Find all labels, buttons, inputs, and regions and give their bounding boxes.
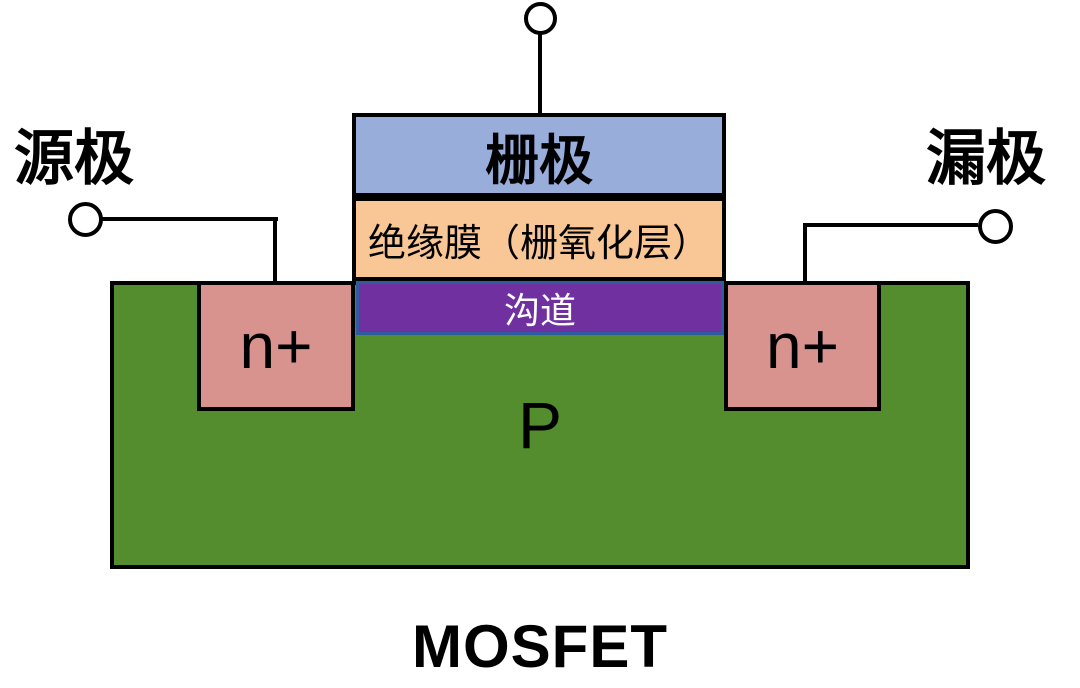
p-substrate-label: P: [518, 387, 562, 463]
gate-lead-wire: [538, 33, 542, 115]
channel-region: 沟道: [356, 281, 724, 335]
drain-lead-wire-vertical: [803, 223, 807, 283]
mosfet-diagram: P n+ n+ 沟道 绝缘膜（栅氧化层） 栅极 源极 漏极 MOSFET: [0, 0, 1080, 688]
source-nplus-region: n+: [197, 281, 355, 411]
gate-electrode: 栅极: [352, 113, 726, 197]
drain-nplus-region: n+: [724, 281, 881, 411]
insulator-label: 绝缘膜（栅氧化层）: [368, 212, 710, 267]
channel-label: 沟道: [504, 282, 576, 334]
gate-terminal-circle: [524, 2, 557, 35]
drain-electrode-label: 漏极: [926, 126, 1046, 192]
drain-lead-wire-horizontal: [806, 223, 978, 227]
source-lead-wire-vertical: [273, 217, 277, 283]
insulator-layer: 绝缘膜（栅氧化层）: [352, 197, 726, 281]
source-nplus-label: n+: [240, 309, 313, 383]
drain-terminal-circle: [978, 209, 1013, 244]
source-lead-wire-horizontal: [102, 217, 278, 221]
source-terminal-circle: [68, 202, 103, 237]
source-electrode-label: 源极: [14, 126, 134, 192]
gate-label: 栅极: [485, 116, 593, 195]
diagram-title: MOSFET: [0, 612, 1080, 681]
drain-nplus-label: n+: [766, 309, 839, 383]
